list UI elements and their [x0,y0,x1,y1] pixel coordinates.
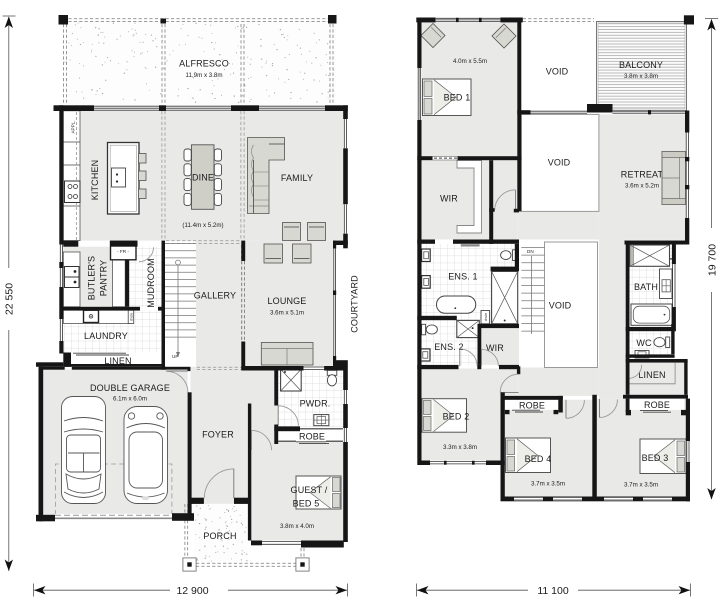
svg-text:4.0m x 5.5m: 4.0m x 5.5m [453,58,487,65]
svg-text:WIR: WIR [440,194,458,204]
svg-text:ALFRESCO: ALFRESCO [179,59,229,69]
svg-text:UP: UP [172,354,178,359]
svg-text:ENS. 2: ENS. 2 [434,342,463,352]
svg-text:ROBE: ROBE [299,432,325,442]
svg-text:BED 1: BED 1 [444,93,471,103]
svg-text:VOID: VOID [548,158,571,168]
svg-text:MUDROOM: MUDROOM [146,258,156,308]
svg-text:COURTYARD: COURTYARD [350,275,360,333]
svg-text:DN: DN [527,249,534,254]
svg-text:PORCH: PORCH [203,531,236,541]
svg-text:12 900: 12 900 [176,585,208,597]
svg-text:VOID: VOID [549,301,572,311]
svg-text:11.9m x 3.8m: 11.9m x 3.8m [185,72,222,79]
svg-text:chute: chute [130,313,134,321]
svg-text:(11.4m x 5.2m): (11.4m x 5.2m) [182,222,223,229]
svg-text:GUEST /: GUEST / [291,485,328,495]
svg-text:- FR -: - FR - [117,249,129,254]
svg-text:GALLERY: GALLERY [194,291,236,301]
svg-text:PANTRY: PANTRY [99,260,109,297]
svg-text:19 700: 19 700 [707,244,719,276]
svg-text:BATH: BATH [634,282,658,292]
svg-text:WIR: WIR [486,343,504,353]
svg-text:PWDR.: PWDR. [300,399,331,409]
svg-text:VOID: VOID [546,67,569,77]
svg-text:LINEN: LINEN [638,370,665,380]
svg-text:3.6m x 5.2m: 3.6m x 5.2m [625,183,659,190]
svg-text:LAUNDRY: LAUNDRY [84,331,128,341]
svg-text:3.8m x 4.0m: 3.8m x 4.0m [280,523,314,530]
svg-text:chute: chute [484,313,488,321]
svg-text:3.6m x 5.1m: 3.6m x 5.1m [270,310,304,317]
svg-text:ENS. 1: ENS. 1 [448,272,477,282]
svg-text:3.7m x 3.5m: 3.7m x 3.5m [624,482,658,489]
svg-text:22 550: 22 550 [3,283,15,315]
svg-text:6.1m x 6.0m: 6.1m x 6.0m [113,396,147,403]
svg-text:BALCONY: BALCONY [619,60,663,70]
svg-text:BUTLER'S: BUTLER'S [87,256,97,300]
svg-text:BED 5: BED 5 [293,499,320,509]
svg-text:WC: WC [636,338,652,348]
svg-text:BED 4: BED 4 [525,454,552,464]
svg-text:3.3m x 3.8m: 3.3m x 3.8m [443,444,477,451]
svg-text:APPL.: APPL. [71,120,76,133]
svg-text:11 100: 11 100 [537,585,568,597]
svg-text:ROBE: ROBE [644,400,670,410]
svg-text:3.8m x 3.8m: 3.8m x 3.8m [624,73,658,80]
svg-text:BED 3: BED 3 [642,453,669,463]
svg-text:FOYER: FOYER [202,430,234,440]
svg-text:DOUBLE GARAGE: DOUBLE GARAGE [90,383,170,393]
svg-text:BED 2: BED 2 [443,412,470,422]
svg-text:ROBE: ROBE [519,401,545,411]
svg-text:3.7m x 3.5m: 3.7m x 3.5m [531,481,565,488]
svg-text:LOUNGE: LOUNGE [268,296,307,306]
svg-text:FAMILY: FAMILY [281,173,313,183]
svg-text:DINE: DINE [192,173,214,183]
svg-text:KITCHEN: KITCHEN [90,160,100,201]
svg-text:RETREAT: RETREAT [621,170,664,180]
